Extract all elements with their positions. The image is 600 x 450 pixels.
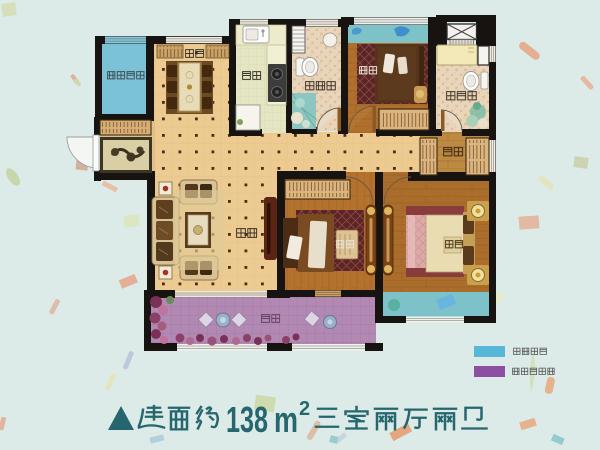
svg-text:138: 138 bbox=[226, 399, 268, 440]
svg-text:m: m bbox=[274, 399, 298, 440]
svg-text:2: 2 bbox=[299, 398, 310, 420]
